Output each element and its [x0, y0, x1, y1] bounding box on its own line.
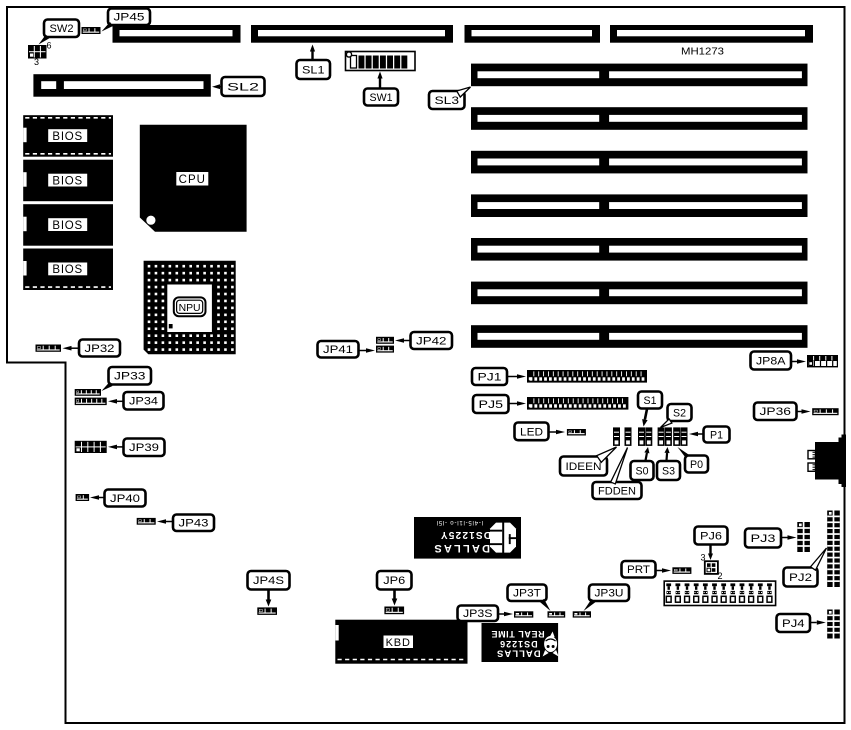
svg-text:PJ3: PJ3 [751, 533, 776, 545]
svg-text:DS1225Y: DS1225Y [440, 529, 491, 540]
svg-text:3: 3 [34, 57, 39, 67]
svg-text:REAL TIME: REAL TIME [491, 629, 545, 639]
svg-text:JP3U: JP3U [595, 588, 624, 600]
svg-text:PJ2: PJ2 [789, 572, 812, 584]
svg-text:JP3T: JP3T [513, 588, 541, 600]
svg-text:JP42: JP42 [416, 335, 447, 347]
svg-text:S3: S3 [662, 465, 675, 477]
svg-text:NPU: NPU [179, 303, 201, 314]
svg-text:IDEEN: IDEEN [566, 461, 602, 473]
svg-text:JP33: JP33 [114, 371, 146, 383]
svg-text:MH1273: MH1273 [681, 46, 724, 58]
svg-text:JP8A: JP8A [756, 355, 786, 367]
svg-text:BIOS: BIOS [52, 131, 83, 143]
svg-text:BIOS: BIOS [52, 220, 83, 232]
svg-text:SL1: SL1 [302, 64, 325, 76]
svg-text:2: 2 [718, 571, 723, 581]
svg-text:SW1: SW1 [370, 92, 393, 104]
svg-text:JP32: JP32 [85, 343, 115, 355]
svg-text:JP3S: JP3S [463, 608, 493, 620]
svg-text:SW2: SW2 [50, 23, 74, 35]
svg-text:P0: P0 [690, 459, 703, 471]
svg-text:S2: S2 [673, 407, 686, 419]
svg-text:DALLAS: DALLAS [432, 542, 490, 554]
svg-text:PJ6: PJ6 [700, 530, 722, 542]
svg-text:FDDEN: FDDEN [598, 485, 636, 497]
svg-text:P1: P1 [710, 429, 723, 441]
svg-text:PRT: PRT [627, 564, 650, 576]
svg-text:JP41: JP41 [323, 344, 353, 356]
svg-text:PJ5: PJ5 [479, 399, 504, 411]
svg-text:BIOS: BIOS [52, 175, 83, 187]
svg-text:JP43: JP43 [179, 518, 209, 530]
svg-text:PJ4: PJ4 [782, 618, 805, 630]
svg-text:JP6: JP6 [383, 575, 405, 587]
svg-text:JP34: JP34 [129, 396, 158, 408]
svg-text:SL2: SL2 [227, 81, 259, 93]
svg-text:CPU: CPU [179, 174, 206, 186]
svg-text:BIOS: BIOS [52, 264, 83, 276]
svg-text:PJ1: PJ1 [478, 371, 502, 383]
svg-text:JP39: JP39 [129, 442, 159, 454]
svg-text:JP40: JP40 [110, 493, 140, 505]
svg-text:3: 3 [701, 553, 706, 563]
svg-text:JP4S: JP4S [253, 575, 284, 587]
svg-text:LED: LED [520, 426, 543, 438]
svg-text:SL3: SL3 [435, 95, 460, 107]
svg-text:KBD: KBD [386, 637, 411, 649]
svg-text:6: 6 [47, 41, 52, 51]
svg-text:JP45: JP45 [114, 12, 145, 24]
svg-text:JP36: JP36 [760, 406, 792, 418]
svg-text:l-4l5-l1l-o -l5l: l-4l5-l1l-o -l5l [436, 519, 483, 525]
svg-text:S1: S1 [644, 395, 657, 407]
svg-text:S0: S0 [636, 465, 649, 477]
svg-text:DS1226: DS1226 [499, 639, 538, 649]
